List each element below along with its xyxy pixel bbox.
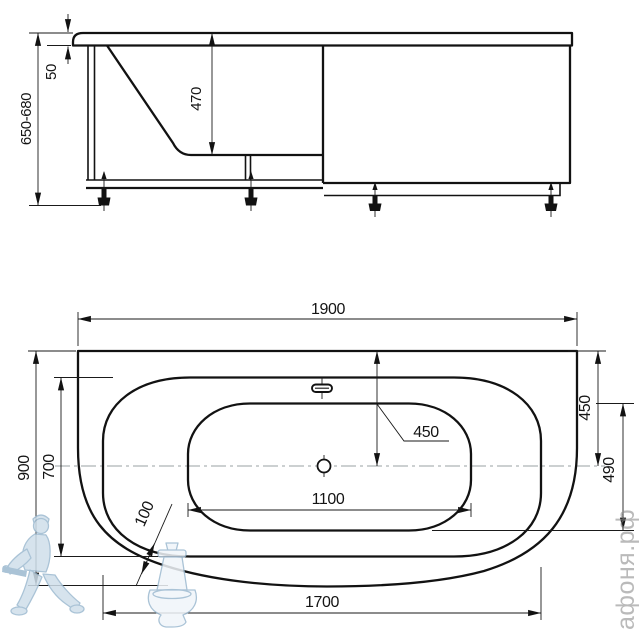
dim-label-bowl-length: 1100 [312,491,345,508]
dim-label-overall-length: 1900 [311,301,345,318]
dim-label-overall-width: 900 [16,455,33,481]
side-bowl-profile [107,46,323,156]
side-left-frame [86,180,323,188]
side-left-wall [88,46,95,181]
dim-label-center-offset-right: 450 [577,395,594,421]
dim-bowl-length: 1100 [188,491,471,517]
adjustable-feet [98,171,558,217]
foot [545,182,558,217]
side-rim-contour [73,33,572,46]
overflow-hole-icon [312,377,332,399]
bathtub-technical-drawing: 650-680 50 470 [0,0,640,630]
dim-label-body-length: 1700 [305,594,339,611]
dim-label-corner-offset: 100 [132,499,158,530]
drain-hole-icon [318,455,331,477]
dim-body-width: 700 [41,378,187,557]
dim-label-body-width: 700 [41,454,58,480]
dim-label-center-offset: 450 [413,424,439,441]
foot [369,182,382,217]
foot [245,171,258,211]
side-apron-panel [323,46,570,196]
dim-label-total-height: 650-680 [18,93,35,145]
plan-view: 1900 900 700 1700 1100 [16,301,634,620]
dim-bowl-depth: 470 [188,33,212,155]
technical-drawing-canvas: 650-680 50 470 [0,0,640,630]
side-view: 650-680 50 470 [18,14,572,217]
plumber-watermark [2,515,196,627]
dim-bowl-width: 490 [432,404,634,531]
dim-center-offset-right: 450 [568,351,606,466]
foot [98,171,111,211]
brand-watermark: афоня.рф [612,509,640,630]
dim-rim-height: 50 [43,14,71,80]
dim-label-bowl-width: 490 [601,457,618,483]
dim-overall-length: 1900 [78,301,577,346]
dim-label-bowl-depth: 470 [188,87,205,111]
dim-label-rim-height: 50 [43,64,60,80]
